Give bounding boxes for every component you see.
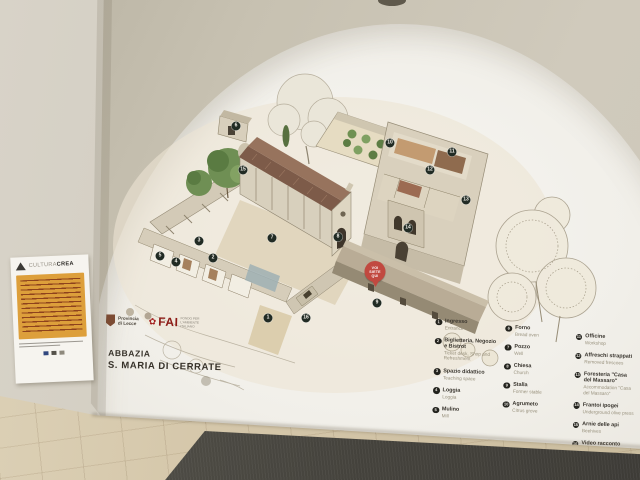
- legend-label-en: Bread oven: [515, 331, 539, 337]
- legend-label-it: Pozzo: [514, 344, 530, 351]
- poster-notice-box: [16, 273, 87, 340]
- map-marker-1: 1: [264, 314, 273, 323]
- legend-item: 5MulinoMill: [432, 406, 494, 420]
- legend-number-badge: 8: [504, 363, 511, 370]
- you-are-here-label: VOI SIETE QUI: [368, 261, 382, 278]
- legend-label-it: Loggia: [442, 387, 460, 394]
- legend-item: 8ChiesaChurch: [504, 363, 566, 377]
- legend-item: 2Biglietteria, Negozio e BistrotTicket d…: [434, 337, 496, 363]
- legend-number-badge: 9: [503, 382, 510, 389]
- poster-notice-text-lines: [20, 278, 82, 335]
- legend-label-en: Former stable: [513, 389, 542, 395]
- map-marker-9: 9: [373, 299, 382, 308]
- map-marker-11: 11: [448, 148, 457, 157]
- map-marker-5: 5: [156, 252, 165, 261]
- legend-number-badge: 1: [435, 318, 442, 325]
- you-are-here-pin: VOI SIETE QUI: [365, 261, 386, 282]
- legend-item: 6FornoBread oven: [505, 324, 567, 338]
- legend-number-badge: 15: [572, 421, 579, 428]
- legend-item: 11OfficineWorkshop: [575, 333, 637, 347]
- map-marker-15: 15: [239, 166, 248, 175]
- legend-label-it: Mulino: [442, 406, 460, 413]
- fai-subtitle: Fondo per l'Ambiente Italiano: [180, 316, 210, 329]
- legend-label-en: Removed frescoes: [584, 359, 632, 366]
- legend-number-badge: 6: [505, 325, 512, 332]
- legend-label-en: Accommodation "Casa del Massaro": [583, 384, 635, 397]
- legend-item: 13Foresteria "Casa del Massaro"Accommoda…: [574, 371, 636, 397]
- legend-number-badge: 5: [432, 406, 439, 413]
- legend-label-en: Entrance: [445, 325, 468, 331]
- map-marker-13: 13: [462, 196, 471, 205]
- room-scene: 12345678910111213141516 VOI SIETE QUI Pr…: [0, 0, 640, 480]
- fai-flower-icon: ✿: [149, 317, 157, 326]
- legend-number-badge: 3: [434, 368, 441, 375]
- partner-logo-icon: [59, 351, 64, 355]
- map-marker-2: 2: [209, 254, 218, 263]
- map-marker-7: 7: [268, 234, 277, 243]
- cultura-crea-triangle-icon: [16, 262, 26, 270]
- legend-item: 4LoggiaLoggia: [433, 387, 495, 401]
- provincia-di-lecce-logo: Provincia di Lecce: [106, 314, 139, 327]
- fai-wordmark: FAI: [158, 316, 178, 329]
- legend-label-it: Foresteria "Casa del Massaro": [584, 371, 636, 385]
- legend-item: 14Frantoi ipogeiUnderground olive press: [573, 402, 635, 416]
- legend-number-badge: 14: [573, 402, 580, 409]
- legend-item: 15Arnie delle apiBeehives: [572, 421, 634, 435]
- poster-brand-bold: CREA: [57, 261, 74, 268]
- legend-label-en: Beehives: [582, 428, 619, 435]
- title-line-1: ABBAZIA: [108, 348, 222, 360]
- legend-number-badge: 13: [574, 372, 581, 379]
- cultura-crea-poster: CULTURACREA: [10, 254, 93, 383]
- legend-item: 1IngressoEntrance: [435, 318, 497, 332]
- legend-label-it: Biglietteria, Negozio e Bistrot: [444, 337, 496, 351]
- map-marker-12: 12: [426, 166, 435, 175]
- mural-title: ABBAZIA S. MARIA DI CERRATE: [108, 348, 222, 373]
- legend-number-badge: 10: [503, 401, 510, 408]
- map-marker-16: 16: [302, 314, 311, 323]
- provincia-label-2: di Lecce: [118, 321, 137, 326]
- legend-item: 9StallaFormer stable: [503, 382, 565, 396]
- legend-item: 3Spazio didatticoTeaching space: [433, 368, 495, 382]
- map-marker-10: 10: [386, 139, 395, 148]
- legend-item: 10AgrumetoCitrus grove: [503, 401, 565, 415]
- legend-number-badge: 2: [435, 338, 442, 345]
- legend-label-en: Teaching space: [443, 375, 485, 382]
- map-marker-8: 8: [334, 233, 343, 242]
- map-marker-3: 3: [195, 237, 204, 246]
- poster-brand-light: CULTURA: [29, 262, 57, 269]
- provincia-shield-icon: [106, 314, 115, 326]
- legend-label-en: Workshop: [585, 340, 606, 346]
- legend-label-en: Citrus grove: [512, 408, 538, 414]
- legend-item: 12Affreschi strappatiRemoved frescoes: [575, 352, 637, 366]
- legend-number-badge: 7: [505, 344, 512, 351]
- poster-footer: [19, 340, 88, 356]
- legend-label-en: Underground olive press: [582, 409, 633, 416]
- ministry-logo-icon: [51, 351, 56, 355]
- eu-flag-icon: [43, 352, 48, 356]
- poster-footer-line: [19, 341, 83, 345]
- poster-footer-line: [19, 345, 60, 348]
- poster-footer-logos: [19, 350, 87, 357]
- legend-label-en: Church: [513, 370, 531, 376]
- legend-item: 7PozzoWell: [505, 344, 567, 358]
- poster-header: CULTURACREA: [16, 260, 84, 271]
- legend-number-badge: 12: [575, 352, 582, 359]
- legend-number-badge: 11: [576, 333, 583, 340]
- title-line-2: S. MARIA DI CERRATE: [108, 360, 222, 373]
- legend-label-en: Well: [514, 351, 530, 357]
- map-marker-4: 4: [172, 258, 181, 267]
- legend-label-en: Loggia: [442, 394, 460, 400]
- legend-label-en: Ticket desk, Shop and Refreshment: [444, 350, 496, 363]
- map-marker-6: 6: [232, 122, 241, 131]
- map-marker-14: 14: [404, 224, 413, 233]
- legend-label-en: Mill: [442, 413, 460, 419]
- legend-number-badge: 4: [433, 387, 440, 394]
- fai-logo: ✿ FAI Fondo per l'Ambiente Italiano: [149, 315, 211, 329]
